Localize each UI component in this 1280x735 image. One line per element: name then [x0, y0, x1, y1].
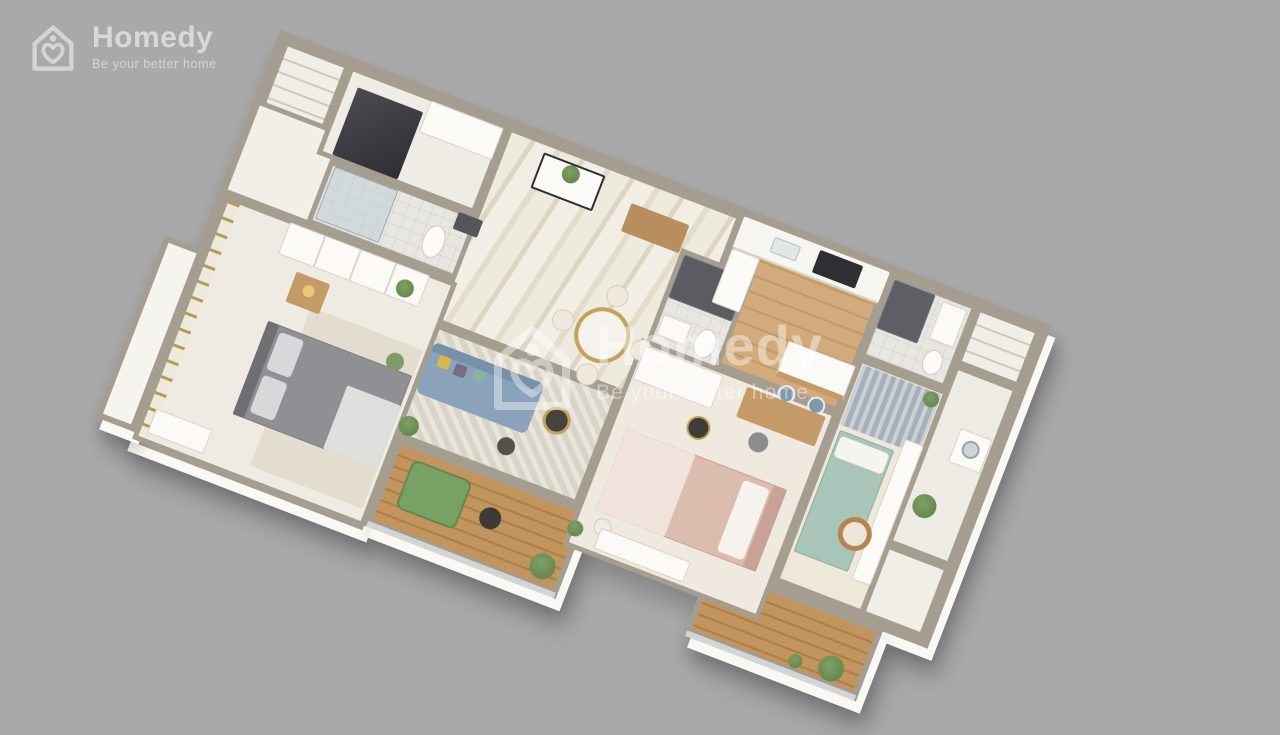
brand-tagline: Be your better home	[92, 58, 217, 71]
house-heart-icon	[26, 20, 80, 74]
brand-name: Homedy	[92, 23, 217, 53]
floorplan-3d-render	[131, 40, 1041, 732]
homedy-logo: Homedy Be your better home	[26, 20, 217, 74]
page: { "brand": { "name": "Homedy", "tagline"…	[0, 0, 1280, 720]
